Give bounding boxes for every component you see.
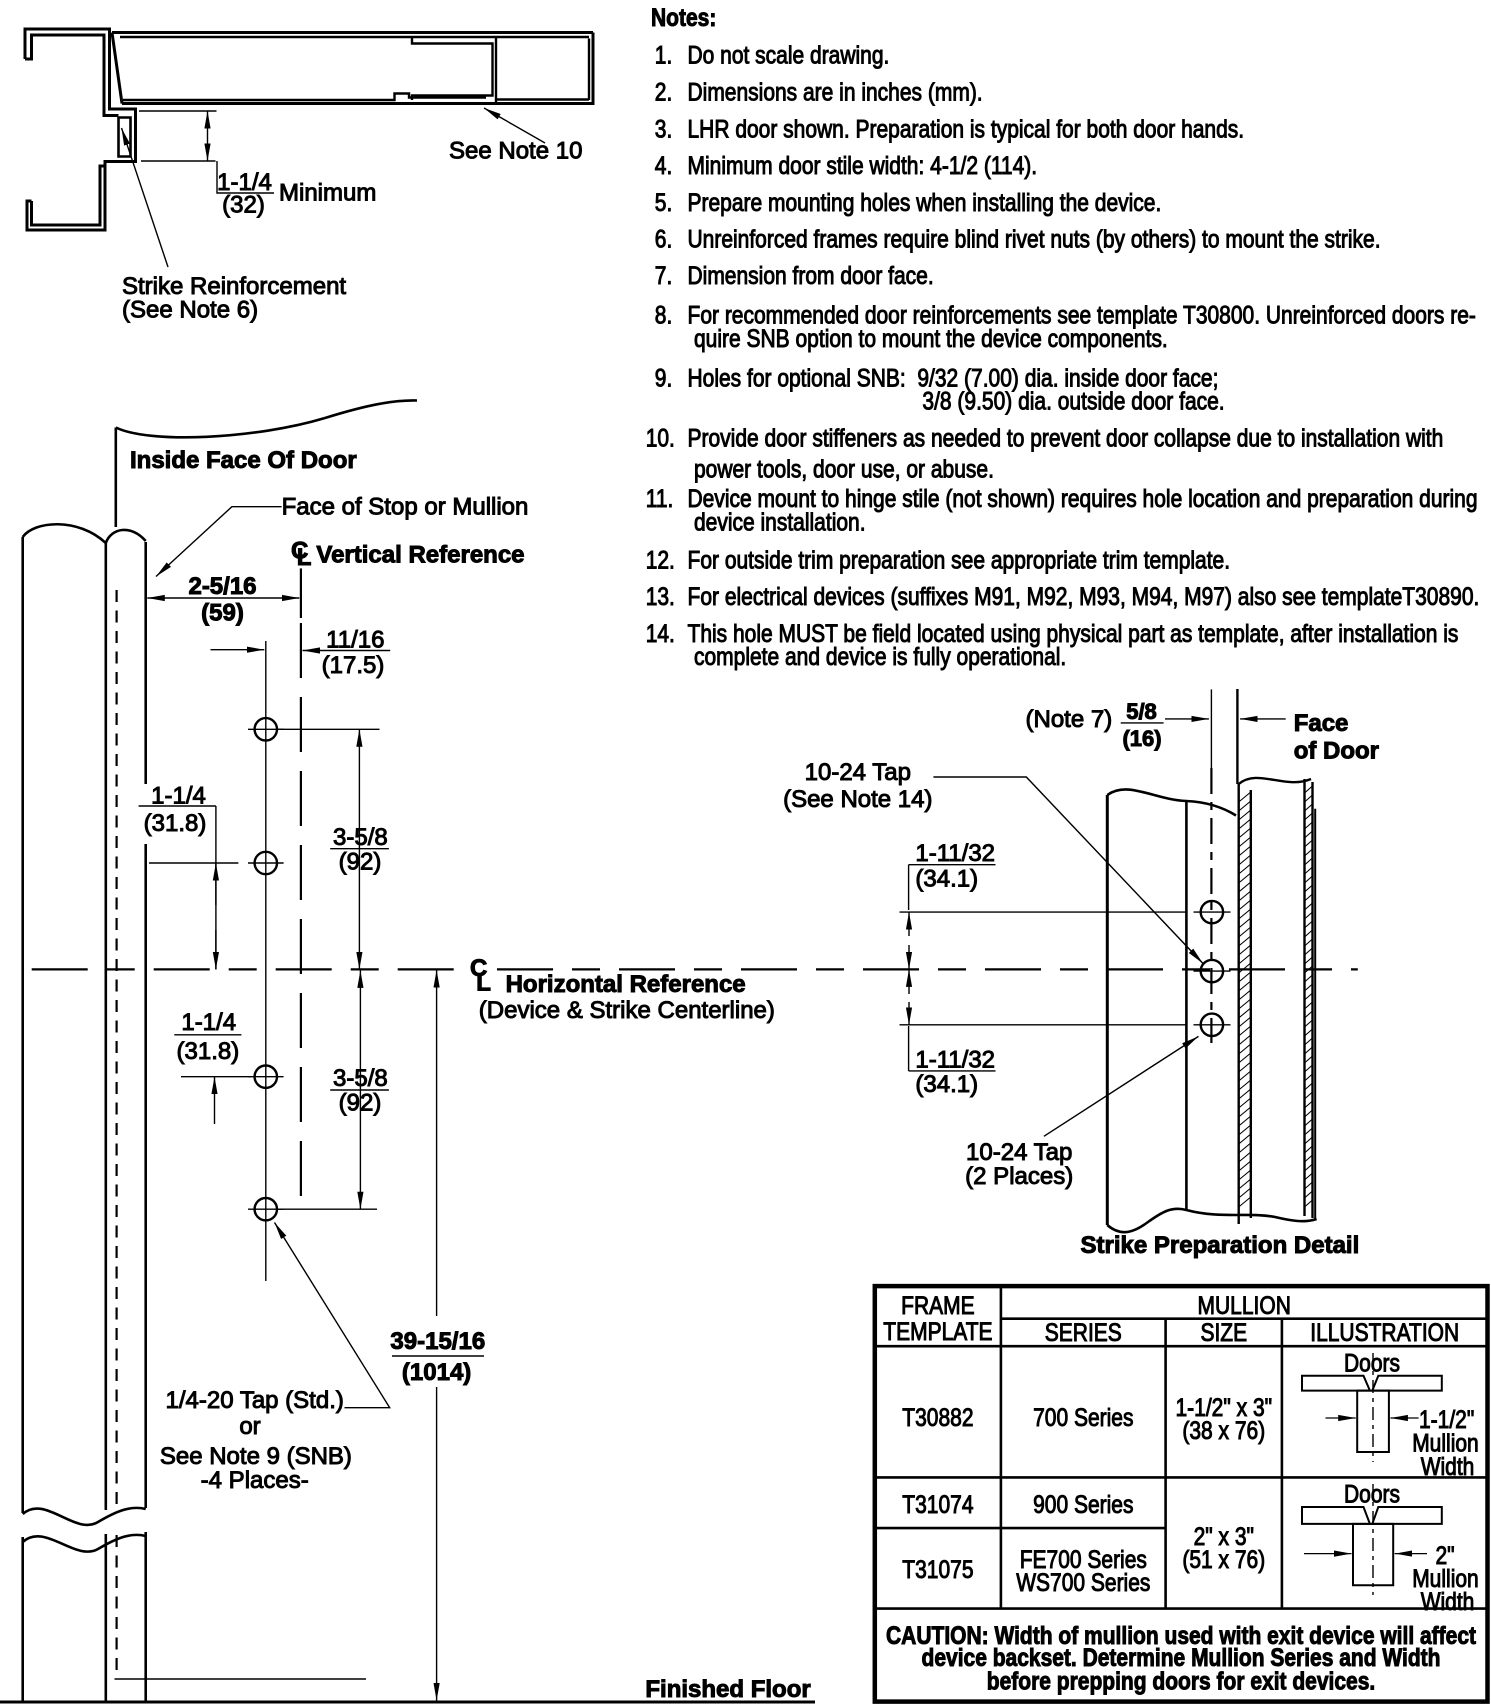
svg-text:2-5/16: 2-5/16	[188, 573, 256, 600]
svg-text:FRAME: FRAME	[901, 1291, 974, 1319]
svg-text:8.: 8.	[655, 301, 673, 329]
svg-text:or: or	[239, 1413, 260, 1440]
svg-text:Prepare mounting holes when in: Prepare mounting holes when installing t…	[688, 188, 1162, 216]
svg-text:complete and device is fully o: complete and device is fully operational…	[694, 642, 1066, 670]
svg-text:3.: 3.	[655, 115, 673, 143]
svg-text:Dimensions are in inches (mm).: Dimensions are in inches (mm).	[688, 78, 983, 106]
svg-text:Strike Preparation Detail: Strike Preparation Detail	[1081, 1232, 1360, 1259]
svg-text:Vertical Reference: Vertical Reference	[316, 542, 524, 569]
svg-text:7.: 7.	[655, 261, 673, 289]
svg-text:Minimum door stile width: 4-1/: Minimum door stile width: 4-1/2 (114).	[688, 151, 1038, 179]
svg-text:L: L	[297, 544, 312, 571]
svg-text:power tools, door use, or abus: power tools, door use, or abuse.	[694, 455, 994, 483]
svg-text:(Note 7): (Note 7)	[1026, 706, 1113, 733]
svg-text:For electrical devices (suffix: For electrical devices (suffixes M91, M9…	[688, 582, 1480, 610]
svg-text:quire SNB option to mount the: quire SNB option to mount the device com…	[694, 324, 1168, 352]
svg-text:MULLION: MULLION	[1198, 1291, 1291, 1319]
svg-text:T31074: T31074	[902, 1490, 973, 1518]
svg-text:(Device & Strike Centerline): (Device & Strike Centerline)	[479, 997, 775, 1024]
svg-text:Provide door stiffeners as nee: Provide door stiffeners as needed to pre…	[688, 424, 1444, 452]
svg-text:For outside trim preparation s: For outside trim preparation see appropr…	[688, 546, 1231, 574]
svg-text:(See Note 14): (See Note 14)	[783, 786, 932, 813]
svg-text:(92): (92)	[339, 1090, 382, 1117]
svg-text:See Note 10: See Note 10	[449, 138, 582, 165]
svg-text:1-11/32: 1-11/32	[915, 1047, 995, 1074]
svg-text:(31.8): (31.8)	[177, 1038, 240, 1065]
svg-text:700 Series: 700 Series	[1033, 1403, 1133, 1431]
svg-text:SERIES: SERIES	[1045, 1318, 1122, 1346]
svg-text:(2 Places): (2 Places)	[965, 1163, 1073, 1190]
svg-text:1/4-20 Tap (Std.): 1/4-20 Tap (Std.)	[166, 1387, 344, 1414]
svg-text:(See Note 6): (See Note 6)	[122, 297, 258, 324]
svg-text:39-15/16: 39-15/16	[390, 1328, 485, 1355]
svg-text:ILLUSTRATION: ILLUSTRATION	[1310, 1318, 1459, 1346]
svg-text:Dimension from door face.: Dimension from door face.	[688, 261, 934, 289]
svg-text:10-24 Tap: 10-24 Tap	[966, 1139, 1072, 1166]
svg-text:Minimum: Minimum	[279, 180, 376, 207]
svg-text:3-5/8: 3-5/8	[333, 1065, 388, 1092]
svg-text:T30882: T30882	[902, 1403, 973, 1431]
svg-text:Doors: Doors	[1344, 1480, 1400, 1508]
svg-text:LHR door shown. Preparation is: LHR door shown. Preparation is typical f…	[688, 115, 1245, 143]
svg-text:13.: 13.	[646, 582, 675, 610]
svg-text:Finished Floor: Finished Floor	[645, 1676, 810, 1703]
svg-text:WS700 Series: WS700 Series	[1016, 1568, 1150, 1596]
svg-text:See Note 9 (SNB): See Note 9 (SNB)	[160, 1443, 352, 1470]
svg-text:11.: 11.	[646, 484, 674, 512]
svg-text:Inside Face Of Door: Inside Face Of Door	[130, 447, 357, 474]
svg-text:TEMPLATE: TEMPLATE	[883, 1317, 992, 1345]
svg-text:Unreinforced frames require bl: Unreinforced frames require blind rivet …	[688, 225, 1381, 253]
svg-text:(92): (92)	[339, 849, 382, 876]
svg-text:1-11/32: 1-11/32	[915, 840, 995, 867]
svg-text:(32): (32)	[222, 192, 265, 219]
svg-text:5/8: 5/8	[1126, 699, 1157, 724]
svg-text:Notes:: Notes:	[651, 3, 716, 31]
svg-text:(34.1): (34.1)	[915, 1071, 978, 1098]
svg-text:900 Series: 900 Series	[1033, 1490, 1133, 1518]
svg-text:9.: 9.	[655, 364, 673, 392]
svg-text:3-5/8: 3-5/8	[333, 824, 388, 851]
svg-text:Face: Face	[1294, 710, 1349, 737]
svg-text:L: L	[476, 970, 491, 997]
svg-text:2.: 2.	[655, 78, 673, 106]
svg-text:-4 Places-: -4 Places-	[201, 1467, 309, 1494]
svg-text:(17.5): (17.5)	[322, 652, 385, 679]
svg-text:(16): (16)	[1122, 726, 1161, 751]
svg-text:1-1/4: 1-1/4	[181, 1009, 236, 1036]
svg-text:5.: 5.	[655, 188, 673, 216]
svg-text:11/16: 11/16	[326, 627, 384, 654]
svg-text:device installation.: device installation.	[694, 508, 866, 536]
svg-text:Width: Width	[1421, 1452, 1475, 1480]
svg-text:3/8 (9.50) dia. outside door f: 3/8 (9.50) dia. outside door face.	[922, 387, 1224, 415]
svg-text:(38 x 76): (38 x 76)	[1182, 1416, 1265, 1444]
svg-text:Doors: Doors	[1344, 1349, 1400, 1377]
svg-text:(34.1): (34.1)	[915, 866, 978, 893]
svg-text:SIZE: SIZE	[1200, 1318, 1247, 1346]
svg-text:Face of Stop or Mullion: Face of Stop or Mullion	[282, 494, 529, 521]
svg-text:of Door: of Door	[1294, 738, 1379, 765]
svg-text:before prepping doors for exit: before prepping doors for exit devices.	[987, 1667, 1375, 1695]
svg-text:10.: 10.	[646, 424, 675, 452]
svg-text:(51 x 76): (51 x 76)	[1182, 1545, 1265, 1573]
svg-text:T31075: T31075	[902, 1555, 973, 1583]
svg-text:10-24 Tap: 10-24 Tap	[805, 759, 911, 786]
svg-text:6.: 6.	[655, 225, 673, 253]
svg-text:4.: 4.	[655, 151, 673, 179]
svg-text:12.: 12.	[646, 546, 675, 574]
svg-text:Horizontal Reference: Horizontal Reference	[506, 971, 746, 998]
svg-text:14.: 14.	[646, 619, 675, 647]
svg-text:Width: Width	[1421, 1587, 1475, 1615]
svg-text:1.: 1.	[655, 41, 673, 69]
svg-text:(59): (59)	[201, 600, 244, 627]
svg-text:(31.8): (31.8)	[144, 810, 207, 837]
svg-text:(1014): (1014)	[402, 1359, 471, 1386]
svg-text:Do not scale drawing.: Do not scale drawing.	[688, 41, 890, 69]
